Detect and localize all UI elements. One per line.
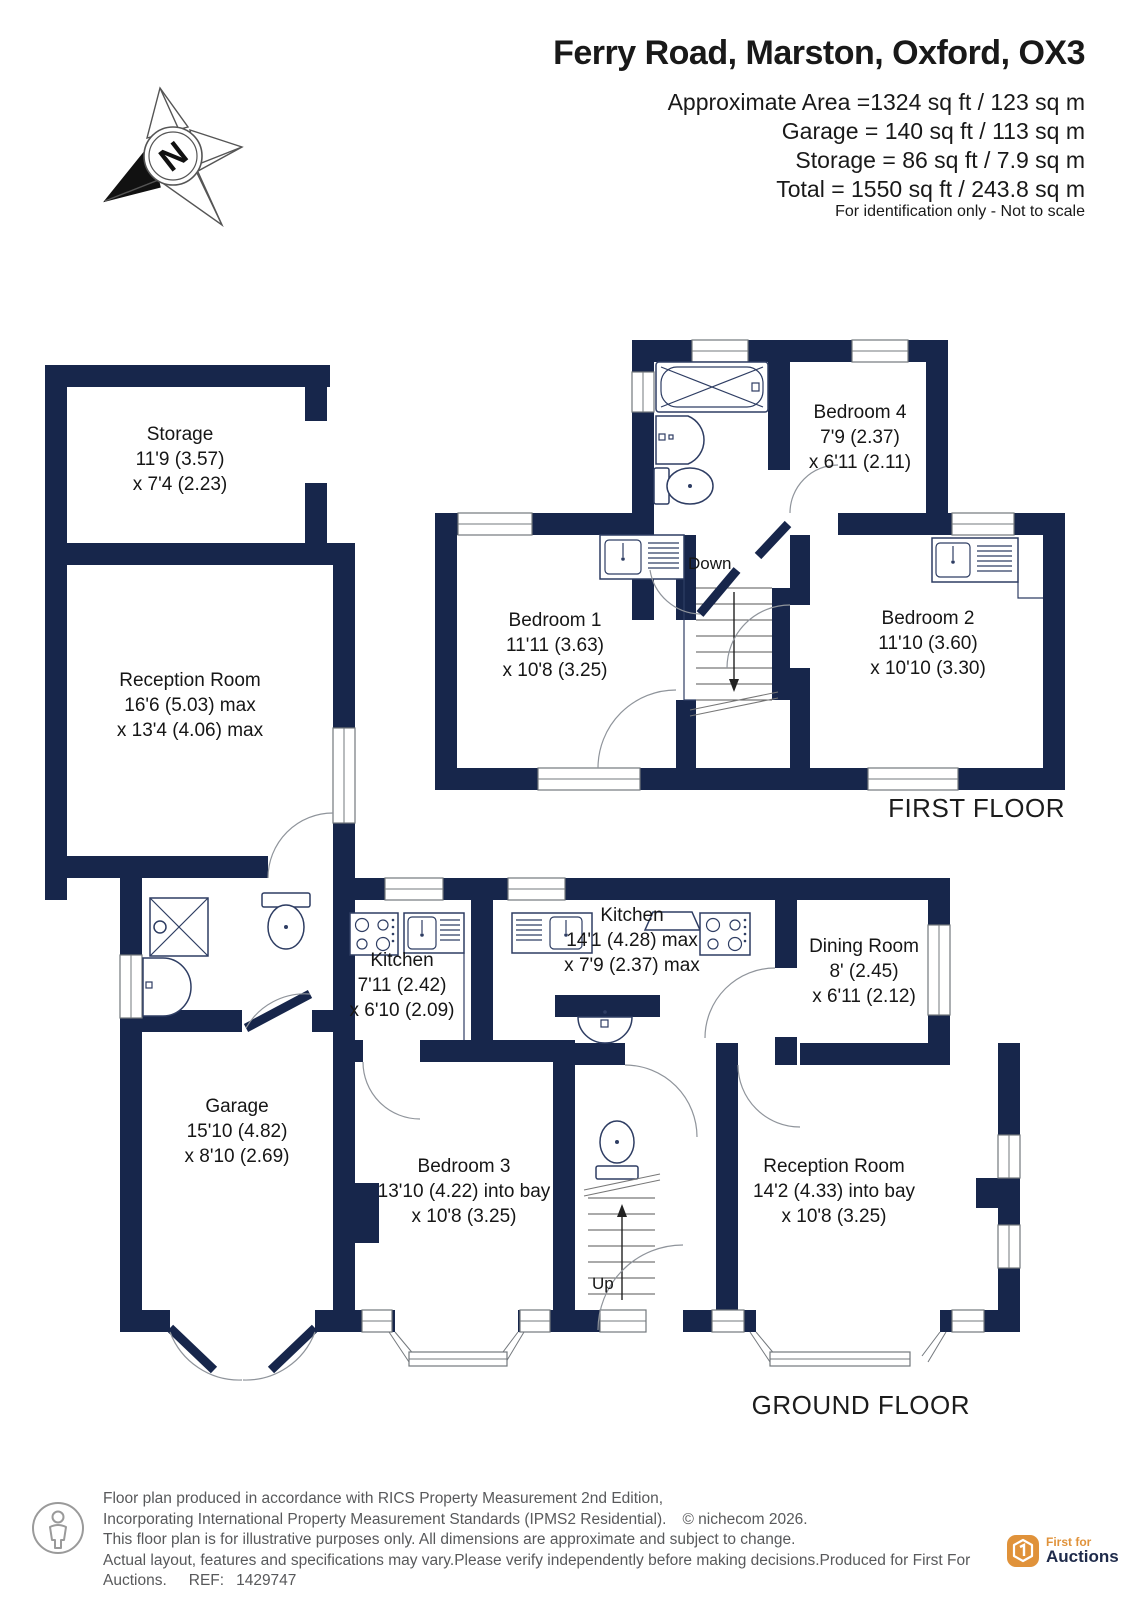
first-for-auctions-text: First for Auctions — [1046, 1536, 1119, 1566]
room-label-bedroom-3: Bedroom 3 13'10 (4.22) into bay x 10'8 (… — [329, 1154, 599, 1229]
room-label-bedroom-1: Bedroom 1 11'11 (3.63) x 10'8 (3.25) — [435, 608, 675, 683]
first-for-auctions-icon — [1006, 1534, 1040, 1568]
room-dim: 7'9 (2.37) — [740, 425, 980, 450]
room-dim: 15'10 (4.82) — [117, 1119, 357, 1144]
room-dim: 11'10 (3.60) — [808, 631, 1048, 656]
room-name: Kitchen — [502, 903, 762, 928]
room-dim: x 10'10 (3.30) — [808, 656, 1048, 681]
footer-line-4-text: Actual layout, features and specificatio… — [103, 1552, 970, 1590]
footer-line-1: Floor plan produced in accordance with R… — [103, 1489, 1013, 1510]
room-dim: x 7'9 (2.37) max — [502, 953, 762, 978]
room-dim: 14'1 (4.28) max — [502, 928, 762, 953]
room-dim: x 10'8 (3.25) — [699, 1204, 969, 1229]
room-label-reception-room-left: Reception Room 16'6 (5.03) max x 13'4 (4… — [70, 668, 310, 743]
room-name: Reception Room — [70, 668, 310, 693]
room-dim: x 10'8 (3.25) — [329, 1204, 599, 1229]
room-name: Bedroom 1 — [435, 608, 675, 633]
cloakroom-sink-icon — [143, 958, 191, 1016]
room-dim: x 13'4 (4.06) max — [70, 718, 310, 743]
room-name: Garage — [117, 1094, 357, 1119]
person-icon — [30, 1500, 86, 1556]
room-label-kitchen-large: Kitchen 14'1 (4.28) max x 7'9 (2.37) max — [502, 903, 762, 978]
room-name: Kitchen — [282, 948, 522, 973]
room-dim: 13'10 (4.22) into bay — [329, 1179, 599, 1204]
bedroom3-bay-window — [389, 1332, 524, 1366]
first-floor-caption: FIRST FLOOR — [800, 793, 1065, 824]
ground-floor-caption: GROUND FLOOR — [705, 1390, 970, 1421]
garage-door-icon — [170, 1328, 315, 1380]
bathroom-toilet-icon — [654, 468, 713, 504]
stairs-down-label: Down — [688, 554, 731, 574]
room-dim: x 10'8 (3.25) — [435, 658, 675, 683]
room-dim: x 6'11 (2.11) — [740, 450, 980, 475]
ref-value: 1429747 — [236, 1572, 296, 1589]
room-dim: 16'6 (5.03) max — [70, 693, 310, 718]
footer-line-3: This floor plan is for illustrative purp… — [103, 1530, 1013, 1551]
room-dim: x 8'10 (2.69) — [117, 1144, 357, 1169]
room-name: Bedroom 3 — [329, 1154, 599, 1179]
bathroom-sink-icon — [656, 416, 704, 464]
logo-text-bottom: Auctions — [1046, 1548, 1119, 1566]
footer-line-2: Incorporating International Property Mea… — [103, 1510, 1013, 1531]
room-dim: 11'11 (3.63) — [435, 633, 675, 658]
room-name: Bedroom 2 — [808, 606, 1048, 631]
room-name: Reception Room — [699, 1154, 969, 1179]
reception-bay-window — [750, 1332, 946, 1366]
room-label-kitchen-small: Kitchen 7'11 (2.42) x 6'10 (2.09) — [282, 948, 522, 1023]
room-dim: 11'9 (3.57) — [60, 447, 300, 472]
cloakroom-toilet-icon — [262, 893, 310, 949]
room-dim: x 6'11 (2.12) — [744, 984, 984, 1009]
footer-line-2-text: Incorporating International Property Mea… — [103, 1511, 666, 1528]
floorplan-page: Ferry Road, Marston, Oxford, OX3 Approxi… — [0, 0, 1131, 1599]
room-label-reception-room-right: Reception Room 14'2 (4.33) into bay x 10… — [699, 1154, 969, 1229]
hall-toilet-icon — [596, 1121, 638, 1179]
room-label-dining-room: Dining Room 8' (2.45) x 6'11 (2.12) — [744, 934, 984, 1009]
first-for-auctions-logo: First for Auctions — [1006, 1534, 1119, 1568]
shower-icon — [150, 898, 208, 956]
stairs-up-label: Up — [592, 1274, 614, 1294]
room-dim: 14'2 (4.33) into bay — [699, 1179, 969, 1204]
room-label-storage: Storage 11'9 (3.57) x 7'4 (2.23) — [60, 422, 300, 497]
room-dim: 8' (2.45) — [744, 959, 984, 984]
room-label-garage: Garage 15'10 (4.82) x 8'10 (2.69) — [117, 1094, 357, 1169]
room-dim: x 6'10 (2.09) — [282, 998, 522, 1023]
ref-label: REF: — [189, 1572, 224, 1589]
room-dim: x 7'4 (2.23) — [60, 472, 300, 497]
room-name: Bedroom 4 — [740, 400, 980, 425]
footer-line-4: Actual layout, features and specificatio… — [103, 1551, 1013, 1592]
footer-disclaimer: Floor plan produced in accordance with R… — [103, 1489, 1013, 1592]
room-name: Storage — [60, 422, 300, 447]
room-label-bedroom-4: Bedroom 4 7'9 (2.37) x 6'11 (2.11) — [740, 400, 980, 475]
bedroom2-sink-unit-icon — [932, 538, 1043, 598]
room-dim: 7'11 (2.42) — [282, 973, 522, 998]
room-label-bedroom-2: Bedroom 2 11'10 (3.60) x 10'10 (3.30) — [808, 606, 1048, 681]
copyright-text: © nichecom 2026. — [682, 1511, 807, 1528]
room-name: Dining Room — [744, 934, 984, 959]
